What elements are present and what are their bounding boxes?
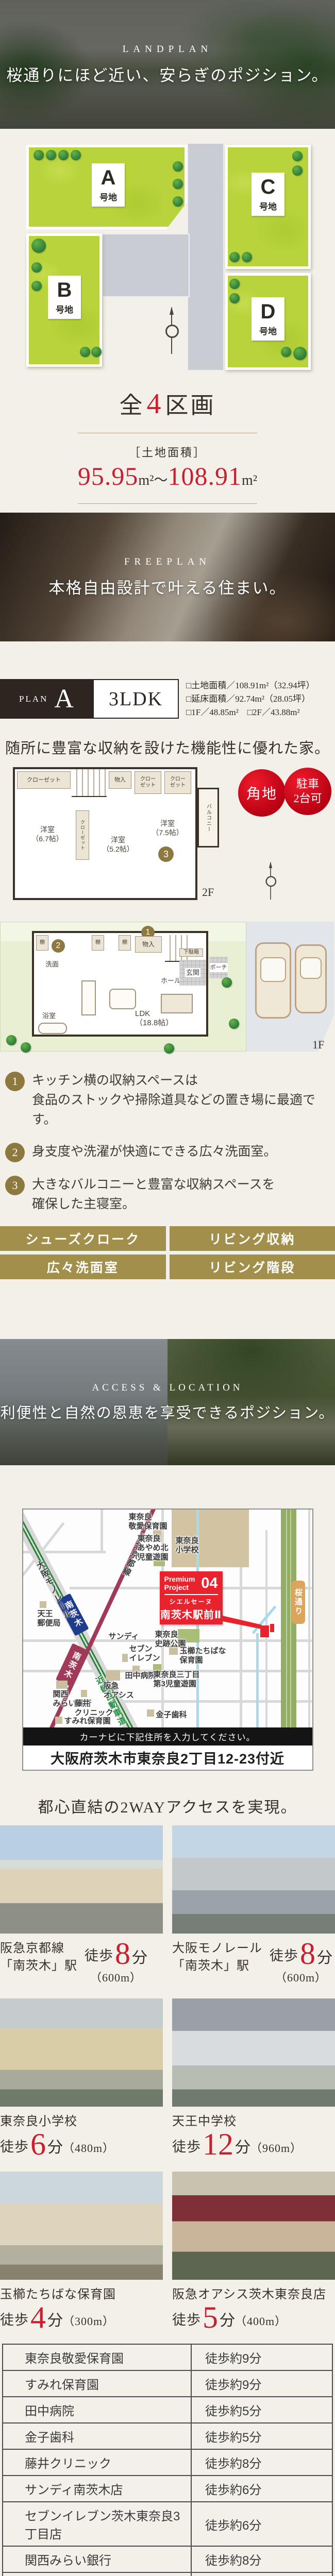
spec-1f-2f: □1F／48.85m² □2F／43.88m² (186, 706, 335, 719)
ldk: LDK （18.8帖） (135, 1009, 173, 1028)
facility-time: 徒歩約8分 (191, 2546, 332, 2572)
table-row: 田中病院徒歩約5分 (3, 2397, 332, 2423)
feature-tags: シューズクローク リビング収納 広々洗面室 リビング階段 (0, 1226, 335, 1279)
site-marker (260, 1625, 269, 1637)
plan-chip: PLAN A (0, 679, 93, 719)
plot-map-section: A 号地 B 号地 C 号地 D 号地 (0, 129, 335, 371)
feature-number: 2 (5, 1143, 25, 1162)
tree-icon (292, 151, 303, 161)
plot-map: A 号地 B 号地 C 号地 D 号地 (23, 143, 312, 371)
floor2-label: 2F (202, 886, 214, 899)
sakura-street-text: 桜通り (293, 1588, 304, 1616)
map-label: 東奈良 小学校 (176, 1536, 199, 1555)
plan-headline: 随所に豊富な収納を設けた機能性に優れた家。 (0, 736, 335, 758)
minute-unit: 分 (47, 2308, 63, 2330)
spec-floor-area: □延床面積／92.74m²（28.05坪） (186, 692, 335, 706)
walk-time: 徒歩 5 分 （400m） (172, 2303, 335, 2331)
total-plots: 全4区画 (0, 386, 335, 420)
landplan-eyebrow: LANDPLAN (123, 44, 212, 55)
feature-list: 1 キッチン横の収納スペースは 食品のストックや掃除道具などの置き場に最適です。… (0, 1071, 335, 1214)
facility-time: 徒歩約9分 (191, 2344, 332, 2370)
summary-section: 全4区画 ［土地面積］ 95.95m²〜108.91m² (0, 371, 335, 513)
card-caption: 阪急京都線 「南茨木」駅 徒歩 8 分 （600m） (0, 1940, 163, 1985)
car-icon (255, 942, 291, 1019)
site-address: 大阪府茨木市東奈良2丁目12-23付近 (23, 1745, 312, 1770)
building-icon (106, 1670, 120, 1681)
access-hero: ACCESS & LOCATION 利便性と自然の恩恵を享受できるポジション。 (0, 1339, 335, 1465)
freeplan-hero: FREEPLAN 本格自由設計で叶える住まい。 (0, 513, 335, 641)
kitchen-island (81, 980, 96, 1015)
floor1-plan: 棚 2 洗面 浴室 棚 棚 1 物入 ホール 下駄箱 玄関 LDK （18.8帖… (0, 916, 335, 1057)
plan-layout: 3LDK (93, 679, 179, 719)
plot-a-suffix: 号地 (99, 190, 117, 203)
card-name: 玉櫛たちばな保育園 (0, 2286, 163, 2303)
table-row: サンディ南茨木店徒歩約6分 (3, 2476, 332, 2502)
area-max: 108.91 (168, 462, 242, 490)
card-name: 天王中学校 (172, 2113, 335, 2130)
card-caption: 阪急オアシス茨木東奈良店 徒歩 5 分 （400m） (172, 2286, 335, 2331)
road-branch (102, 233, 190, 297)
walk-minutes: 8 (113, 1940, 132, 1968)
project-number: 04 (201, 1576, 217, 1591)
bathroom: 浴室 (42, 1011, 56, 1021)
station-name: 南茨木 (59, 1649, 83, 1681)
walk-label: 徒歩 (172, 2136, 201, 2156)
access-card-nursery: 玉櫛たちばな保育園 徒歩 4 分 （300m） (0, 2172, 163, 2331)
balcony: バルコニー (197, 788, 219, 848)
distance: （400m） (235, 2312, 287, 2329)
area-unit: m² (138, 472, 154, 488)
line-name: 大阪モノレール (172, 1940, 262, 1957)
facility-time: 徒歩約9分 (191, 2572, 332, 2576)
station-name: 「南茨木」駅 (0, 1957, 77, 1975)
feature-text: 大きなバルコニーと豊富な収納スペースを 確保した主寝室。 (32, 1175, 275, 1214)
map-label: サンディ (109, 1632, 139, 1641)
plot-a-label: A 号地 (92, 163, 125, 207)
elementary-school-photo (0, 1998, 163, 2107)
divider (78, 433, 257, 433)
walk-label: 徒歩 (172, 2309, 201, 2329)
feature-item: 3 大きなバルコニーと豊富な収納スペースを 確保した主寝室。 (5, 1175, 332, 1214)
project-brand: Premium Project (164, 1575, 195, 1591)
tree-icon (58, 150, 69, 160)
tree-icon (222, 977, 232, 988)
access-title: 利便性と自然の恩恵を享受できるポジション。 (1, 1401, 335, 1422)
room-7-5: 洋室 （7.5帖） (143, 819, 192, 837)
dining-table (109, 989, 136, 1009)
tree-icon (46, 150, 56, 160)
feature-number: 3 (5, 1176, 25, 1195)
floor1-label: 1F (312, 1038, 324, 1052)
plot-d-letter: D (261, 301, 276, 322)
card-caption: 東奈良小学校 徒歩 6 分 （480m） (0, 2113, 163, 2158)
facility-name: すみれ保育園 (3, 2370, 191, 2397)
table-row: セブンイレブン茨木東奈良3丁目店徒歩約6分 (3, 2502, 332, 2546)
feature-marker-2: 2 (52, 939, 65, 953)
access-cards: 阪急京都線 「南茨木」駅 徒歩 8 分 （600m） 大阪モノレ (0, 1825, 335, 2331)
total-prefix: 全 (119, 393, 144, 418)
total-suffix: 区画 (165, 393, 216, 418)
tree-icon (80, 347, 90, 357)
map-label: 東奈良 史跡公園 (155, 1630, 186, 1649)
supermarket-photo (172, 2172, 335, 2280)
walk-time: 徒歩 8 分 （600m） (85, 1940, 147, 1985)
tree-icon (31, 281, 42, 291)
access-card-juniorhigh: 天王中学校 徒歩 12 分 （960m） (172, 1998, 335, 2158)
access-eyebrow: ACCESS & LOCATION (92, 1382, 243, 1394)
table-row: 東奈良敬愛保育園徒歩約9分 (3, 2344, 332, 2370)
entrance: 玄関 (179, 960, 206, 986)
project-subname: シエルセーヌ (160, 1597, 223, 1606)
building-icon (55, 1717, 62, 1724)
project-divider (164, 1594, 218, 1595)
compass-icon (262, 862, 279, 900)
total-count: 4 (145, 388, 165, 420)
monoire-box: 物入 (109, 771, 131, 789)
tag-washroom: 広々洗面室 (0, 1255, 166, 1279)
walk-minutes: 8 (298, 1940, 317, 1968)
tree-icon (173, 196, 183, 207)
feature-text: キッチン横の収納スペースは 食品のストックや掃除道具などの置き場に最適です。 (32, 1071, 332, 1129)
plot-c-label: C 号地 (252, 173, 284, 216)
card-name: 阪急オアシス茨木東奈良店 (172, 2286, 335, 2303)
map-label: 金子歯科 (156, 1710, 187, 1720)
porch-label: ポーチ (210, 963, 228, 972)
hall: ホール (161, 976, 181, 986)
map-label: 東奈良三丁目 第3児童遊園 (154, 1670, 200, 1689)
tree-icon (229, 252, 240, 262)
walk-minutes: 5 (201, 2303, 220, 2331)
plot-b-suffix: 号地 (56, 302, 73, 315)
distance: （960m） (250, 2139, 302, 2156)
entrance-label: 玄関 (185, 968, 200, 977)
feature-item: 2 身支度や洗濯が快適にできる広々洗面室。 (5, 1142, 332, 1162)
floor2-plan: クローゼット 洋室 （6.7帖） 物入 クロー ゼット クロー ゼット クローゼ… (0, 761, 335, 916)
card-caption: 玉櫛たちばな保育園 徒歩 4 分 （300m） (0, 2286, 163, 2331)
minute-unit: 分 (47, 2134, 63, 2157)
facility-name: サンディ南茨木店 (3, 2476, 191, 2502)
card-name: 阪急京都線 「南茨木」駅 (0, 1940, 77, 1975)
project-name: 南茨木駅前Ⅱ (160, 1606, 223, 1621)
tag-shoes-cloak: シューズクローク (0, 1226, 166, 1251)
plan-specs: □土地面積／108.91m²（32.94坪） □延床面積／92.74m²（28.… (179, 679, 335, 719)
area-range: 95.95m²〜108.91m² (0, 461, 335, 491)
plan-header: PLAN A 3LDK □土地面積／108.91m²（32.94坪） □延床面積… (0, 679, 335, 719)
landplan-hero: LANDPLAN 桜通りにほど近い、安らぎのポジション。 (0, 0, 335, 129)
map-label: 玉櫛たちばな 保育園 (180, 1647, 226, 1665)
map-label: 田中病院 (125, 1671, 156, 1681)
walk-label: 徒歩 (0, 2136, 29, 2156)
plot-b-letter: B (57, 280, 72, 300)
freeplan-eyebrow: FREEPLAN (124, 556, 211, 568)
shelf-box: 棚 (119, 935, 131, 951)
minute-unit: 分 (317, 1945, 332, 1968)
tree-icon (91, 347, 102, 357)
sakura-street-label: 桜通り (292, 1581, 305, 1624)
divider (78, 503, 257, 504)
hankyu-station-photo (0, 1825, 163, 1934)
walk-label: 徒歩 (85, 1944, 113, 1964)
tree-icon (33, 150, 44, 160)
access-headline: 都心直結の2WAYアクセスを実現。 (0, 1794, 335, 1817)
tree-icon (229, 293, 240, 303)
plot-d-suffix: 号地 (259, 324, 277, 337)
table-row: 関西みらい銀行徒歩約8分 (3, 2546, 332, 2572)
map-label: すみれ保育園 (64, 1717, 111, 1726)
balcony-label: バルコニー (205, 804, 212, 832)
porch: ポーチ (209, 957, 228, 978)
building-icon (122, 1654, 128, 1662)
closet-vertical: クローゼット (76, 810, 89, 860)
floor1-outline: 棚 2 洗面 浴室 棚 棚 1 物入 ホール 下駄箱 玄関 LDK （18.8帖… (32, 931, 208, 1037)
distance: （600m） (85, 1969, 147, 1985)
monoire-box: 物入 (135, 936, 162, 953)
tree-icon (164, 1043, 174, 1054)
minute-unit: 分 (132, 1945, 147, 1968)
access-card-hankyu: 阪急京都線 「南茨木」駅 徒歩 8 分 （600m） (0, 1825, 163, 1985)
facility-time: 徒歩約5分 (191, 2423, 332, 2449)
card-name: 東奈良小学校 (0, 2113, 163, 2130)
street (308, 1510, 310, 1727)
tree-icon (292, 165, 303, 176)
distance: （300m） (63, 2312, 114, 2329)
site-marker (270, 1624, 274, 1632)
facility-time: 徒歩約9分 (191, 2370, 332, 2397)
flyer-page: LANDPLAN 桜通りにほど近い、安らぎのポジション。 A 号地 B 号地 C… (0, 0, 335, 2576)
facility-name: 東奈良敬愛保育園 (3, 2344, 191, 2370)
facility-time: 徒歩約8分 (191, 2449, 332, 2476)
tag-living-storage: リビング収納 (170, 1226, 335, 1251)
tag-living-stairs: リビング階段 (170, 1255, 335, 1279)
station-name: 「南茨木」駅 (172, 1957, 262, 1975)
closet-box: クローゼット (17, 771, 71, 789)
tree-icon (31, 239, 46, 253)
closet-box: クロー ゼット (135, 771, 161, 794)
corner-lot-badge: 角地 (238, 769, 286, 817)
closet-vertical-label: クローゼット (79, 820, 86, 851)
facility-name: 藤井クリニック (3, 2449, 191, 2476)
project-badge: Premium Project 04 シエルセーヌ 南茨木駅前Ⅱ (160, 1571, 223, 1624)
shelf-box: 棚 (92, 935, 104, 951)
tree-icon (229, 1019, 239, 1029)
road-vertical (187, 143, 224, 371)
minute-unit: 分 (220, 2308, 235, 2330)
walk-time: 徒歩 8 分 （600m） (270, 1940, 332, 1985)
walk-minutes: 4 (29, 2303, 47, 2331)
feature-marker-3: 3 (158, 846, 174, 862)
line-name: 阪急京都線 (0, 1940, 77, 1957)
tree-icon (229, 279, 240, 289)
plot-d-label: D 号地 (252, 297, 284, 341)
area-map: 南茨木 南茨木 大阪モノレール 阪急京都線 近畿自動車道 桜通り (22, 1509, 313, 1771)
stream (256, 1633, 259, 1727)
walk-label: 徒歩 (270, 1944, 298, 1964)
table-row: すみれ保育園徒歩約9分 (3, 2370, 332, 2397)
card-caption: 天王中学校 徒歩 12 分 （960m） (172, 2113, 335, 2158)
card-caption: 大阪モノレール 「南茨木」駅 徒歩 8 分 （600m） (172, 1940, 335, 1985)
map-label: 藤井 クリニック (75, 1699, 113, 1718)
parking-badge: 駐車 2台可 (284, 768, 331, 815)
feature-item: 1 キッチン横の収納スペースは 食品のストックや掃除道具などの置き場に最適です。 (5, 1071, 332, 1129)
walk-time: 徒歩 4 分 （300m） (0, 2303, 163, 2331)
landplan-title: 桜通りにほど近い、安らぎのポジション。 (6, 62, 328, 86)
stairs (72, 769, 107, 797)
washroom: 洗面 (45, 960, 59, 969)
tree-icon (281, 347, 291, 357)
nursery-photo (0, 2172, 163, 2280)
shelf-box: 棚 (36, 935, 48, 951)
walk-time: 徒歩 12 分 （960m） (172, 2130, 335, 2158)
table-row: 金子歯科徒歩約5分 (3, 2423, 332, 2449)
facility-name: 天王郵便局 (3, 2572, 191, 2576)
compass-icon (161, 308, 182, 354)
facility-name: 田中病院 (3, 2397, 191, 2423)
building-icon (40, 1601, 46, 1608)
map-label: 阪急 オアシス (104, 1682, 134, 1700)
carnavi-note: カーナビに下記住所を入力してください。 (23, 1727, 312, 1745)
parking-label: 駐車 2台可 (293, 777, 322, 806)
bathtub (38, 1023, 67, 1034)
plan-letter: A (54, 686, 74, 713)
plan-word: PLAN (19, 694, 48, 704)
tree-icon (293, 347, 307, 360)
junior-high-photo (172, 1998, 335, 2107)
access-card-elementary: 東奈良小学校 徒歩 6 分 （480m） (0, 1998, 163, 2158)
plot-c-suffix: 号地 (259, 199, 277, 212)
plot-a-letter: A (101, 167, 116, 188)
walk-label: 徒歩 (0, 2309, 29, 2329)
freeplan-title: 本格自由設計で叶える住まい。 (48, 575, 286, 598)
feature-number: 1 (5, 1072, 25, 1091)
room-6-7: 洋室 （6.7帖） (24, 825, 71, 843)
facility-time: 徒歩約5分 (191, 2397, 332, 2423)
area-unit: m² (242, 472, 257, 488)
area-label: ［土地面積］ (0, 444, 335, 460)
tree-icon (71, 150, 81, 160)
plot-b-label: B 号地 (48, 276, 81, 319)
minute-unit: 分 (235, 2134, 250, 2157)
tree-icon (173, 161, 183, 172)
access-card-monorail: 大阪モノレール 「南茨木」駅 徒歩 8 分 （600m） (172, 1825, 335, 1985)
facility-time: 徒歩約6分 (191, 2476, 332, 2502)
tree-icon (242, 252, 252, 262)
tree-icon (6, 1035, 16, 1045)
map-label: 東奈良 敬愛保育園 (129, 1513, 167, 1531)
monorail-station-photo (172, 1825, 335, 1934)
closet-box: クロー ゼット (164, 771, 191, 794)
car-icon (295, 944, 327, 1013)
tree-icon (21, 1042, 31, 1053)
corner-lot-label: 角地 (246, 783, 277, 803)
access-card-supermarket: 阪急オアシス茨木東奈良店 徒歩 5 分 （400m） (172, 2172, 335, 2331)
map-label: 天王 郵便局 (38, 1609, 61, 1628)
table-row: 天王郵便局徒歩約9分 (3, 2572, 332, 2576)
area-min: 95.95 (78, 462, 139, 490)
walk-time: 徒歩 6 分 （480m） (0, 2130, 163, 2158)
facilities-table: 東奈良敬愛保育園徒歩約9分 すみれ保育園徒歩約9分 田中病院徒歩約5分 金子歯科… (2, 2344, 333, 2576)
building-icon (147, 1709, 154, 1717)
card-name: 大阪モノレール 「南茨木」駅 (172, 1940, 262, 1975)
facility-name: セブンイレブン茨木東奈良3丁目店 (3, 2502, 191, 2546)
facility-name: 金子歯科 (3, 2423, 191, 2449)
tree-icon (173, 179, 183, 189)
feature-text: 身支度や洗濯が快適にできる広々洗面室。 (32, 1142, 277, 1162)
map-label: 東奈良 あやめ北 児童遊園 (138, 1534, 169, 1562)
walk-minutes: 12 (201, 2130, 235, 2158)
building-icon (56, 1681, 68, 1689)
distance: （600m） (270, 1969, 332, 1985)
project-arrow (223, 1616, 262, 1629)
distance: （480m） (63, 2139, 114, 2156)
facility-name: 関西みらい銀行 (3, 2546, 191, 2572)
plot-c-letter: C (261, 177, 276, 197)
tree-icon (31, 262, 42, 273)
walk-minutes: 6 (29, 2130, 47, 2158)
floor2-outline: クローゼット 洋室 （6.7帖） 物入 クロー ゼット クロー ゼット クローゼ… (13, 767, 197, 900)
table-row: 藤井クリニック徒歩約8分 (3, 2449, 332, 2476)
tilde: 〜 (154, 472, 168, 488)
shoe-cabinet: 下駄箱 (179, 948, 203, 957)
spec-land-area: □土地面積／108.91m²（32.94坪） (186, 679, 335, 692)
map-canvas: 南茨木 南茨木 大阪モノレール 阪急京都線 近畿自動車道 桜通り (23, 1510, 312, 1727)
facility-time: 徒歩約6分 (191, 2502, 332, 2546)
room-5-2: 洋室 （5.2帖） (95, 835, 141, 854)
